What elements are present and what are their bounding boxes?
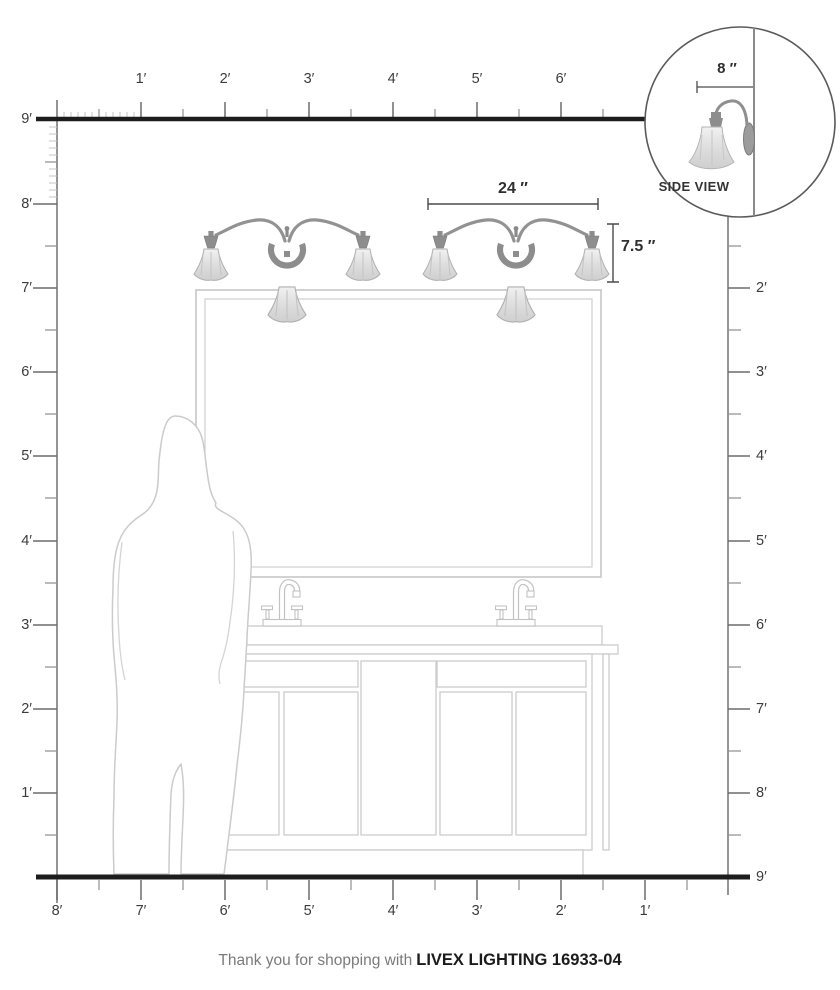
ruler-label-left: 3′ bbox=[2, 616, 32, 634]
mirror bbox=[196, 290, 601, 577]
ruler-label-left: 4′ bbox=[2, 532, 32, 550]
ruler-label-left: 8′ bbox=[2, 195, 32, 213]
ruler-label-right: 9′ bbox=[756, 868, 767, 886]
door-4 bbox=[516, 692, 586, 835]
counter-slab bbox=[215, 645, 618, 654]
ruler-label-right: 8′ bbox=[756, 784, 767, 802]
wall-depth-dimension: 8 ″ bbox=[717, 60, 737, 77]
footer: Thank you for shopping withLIVEX LIGHTIN… bbox=[0, 951, 840, 970]
ruler-label-right: 2′ bbox=[756, 279, 767, 297]
ruler-label-left: 9′ bbox=[2, 110, 32, 128]
ruler-label-top: 6′ bbox=[556, 70, 567, 88]
fixture-height-dimension: 7.5 ″ bbox=[621, 238, 655, 256]
ruler-label-top: 4′ bbox=[388, 70, 399, 88]
ruler-label-top: 5′ bbox=[472, 70, 483, 88]
ruler-label-right: 4′ bbox=[756, 447, 767, 465]
ruler-label-right: 5′ bbox=[756, 532, 767, 550]
footer-thankyou-text: Thank you for shopping with bbox=[218, 952, 412, 969]
ruler-label-bottom: 4′ bbox=[388, 902, 399, 920]
ruler-label-bottom: 8′ bbox=[52, 902, 63, 920]
sconce-backplate bbox=[744, 123, 755, 155]
scale-diagram bbox=[0, 0, 840, 990]
ruler-label-left: 1′ bbox=[2, 784, 32, 802]
ruler-label-left: 2′ bbox=[2, 700, 32, 718]
counter-side-return bbox=[603, 654, 609, 850]
ruler-label-top: 1′ bbox=[136, 70, 147, 88]
ruler-label-top: 3′ bbox=[304, 70, 315, 88]
ruler-label-left: 7′ bbox=[2, 279, 32, 297]
center-panel bbox=[361, 661, 436, 835]
ruler-label-left: 6′ bbox=[2, 363, 32, 381]
ruler-label-right: 6′ bbox=[756, 616, 767, 634]
door-2 bbox=[284, 692, 358, 835]
ruler-label-right: 3′ bbox=[756, 363, 767, 381]
counter-backsplash bbox=[247, 626, 602, 645]
ruler-label-top: 2′ bbox=[220, 70, 231, 88]
faucet-left bbox=[262, 580, 303, 626]
left-half-ticks bbox=[45, 162, 57, 835]
vanity-cabinet bbox=[208, 626, 618, 877]
right-major-ticks bbox=[728, 288, 750, 793]
toe-kick bbox=[222, 850, 583, 877]
ruler-label-right: 7′ bbox=[756, 700, 767, 718]
width-dimension-line bbox=[428, 198, 598, 210]
fixture-width-dimension: 24 ″ bbox=[498, 180, 528, 198]
sconce-socket bbox=[709, 112, 723, 127]
footer-product-code: LIVEX LIGHTING 16933-04 bbox=[416, 951, 621, 969]
ruler-label-bottom: 7′ bbox=[136, 902, 147, 920]
ruler-label-bottom: 6′ bbox=[220, 902, 231, 920]
ruler-label-bottom: 2′ bbox=[556, 902, 567, 920]
ruler-label-bottom: 5′ bbox=[304, 902, 315, 920]
ruler-label-bottom: 1′ bbox=[640, 902, 651, 920]
side-view-label: SIDE VIEW bbox=[659, 179, 730, 194]
ruler-label-bottom: 3′ bbox=[472, 902, 483, 920]
door-3 bbox=[440, 692, 512, 835]
drawer-right bbox=[437, 661, 586, 687]
faucet-right bbox=[496, 580, 537, 626]
ruler-label-left: 5′ bbox=[2, 447, 32, 465]
